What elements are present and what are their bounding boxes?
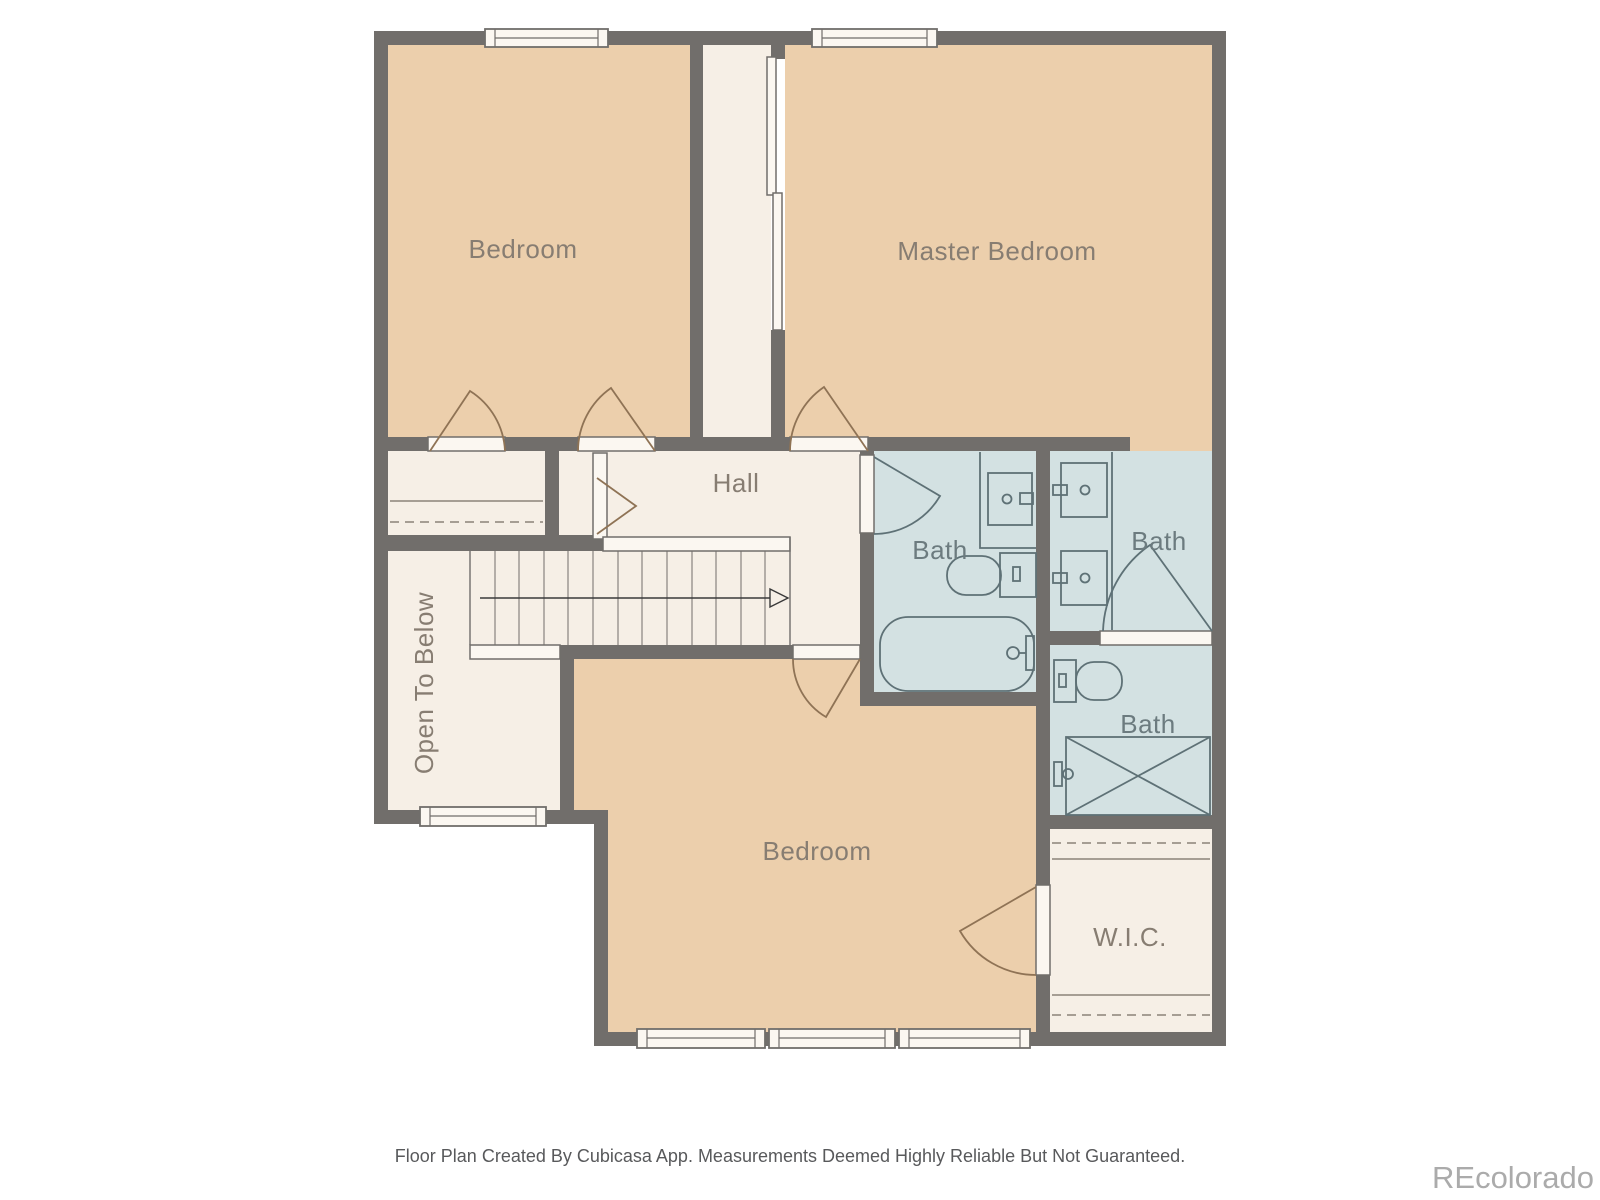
room-label-master-bedroom: Master Bedroom [897, 236, 1096, 266]
watermark-recolorado: REcolorado [1432, 1160, 1594, 1195]
bedroom-bottom-floor-b [574, 706, 1036, 824]
room-label-bedroom-bottom: Bedroom [763, 836, 872, 866]
window [420, 807, 546, 826]
floor-plan-canvas: Bedroom Master Bedroom Hall Bath Bath Ba… [0, 0, 1600, 1200]
wall-segment [1036, 975, 1050, 1032]
window [899, 1029, 1030, 1048]
door-sill [593, 453, 607, 539]
door-sill [1036, 885, 1050, 975]
wall-segment [545, 451, 559, 535]
door-sill [578, 437, 655, 451]
room-label-open-to-below: Open To Below [409, 592, 439, 774]
bath-middle-floor [874, 451, 1036, 692]
stair-rail [603, 537, 790, 551]
master-closet-floor [703, 45, 771, 437]
wall-segment [374, 535, 603, 551]
hall-floor-lower [790, 537, 860, 645]
wall-segment [1036, 631, 1100, 645]
wall-segment [374, 437, 428, 451]
room-label-bath-middle: Bath [912, 535, 968, 565]
sliding-door-panel [767, 57, 776, 195]
door-sill [860, 455, 874, 533]
wall-segment [655, 437, 790, 451]
room-label-hall: Hall [713, 468, 760, 498]
door-sill [1100, 631, 1212, 645]
window [637, 1029, 765, 1048]
floor-plan-page: Bedroom Master Bedroom Hall Bath Bath Ba… [0, 0, 1600, 1200]
wall-segment [374, 31, 388, 824]
bedroom-bottom-floor-a [574, 659, 860, 706]
wall-segment [1036, 645, 1050, 885]
wall-segment [560, 645, 574, 824]
wall-segment [1212, 31, 1226, 1046]
door-sill [793, 645, 860, 659]
window [769, 1029, 895, 1048]
wall-segment [860, 533, 874, 706]
wall-segment [560, 645, 793, 659]
master-bedroom-floor-extension [1130, 437, 1212, 453]
door-sill [790, 437, 868, 451]
wall-segment [505, 437, 578, 451]
door-sill [428, 437, 505, 451]
sliding-door-panel [773, 193, 782, 330]
disclaimer-text: Floor Plan Created By Cubicasa App. Meas… [395, 1146, 1185, 1166]
room-label-walk-in-closet: W.I.C. [1093, 922, 1167, 952]
wall-segment [1036, 815, 1212, 829]
room-label-bath-lower-right: Bath [1120, 709, 1176, 739]
room-label-bath-top-right: Bath [1131, 526, 1187, 556]
wall-segment [1036, 437, 1050, 645]
stair-rail [470, 645, 560, 659]
room-label-bedroom-top-left: Bedroom [469, 234, 578, 264]
wall-segment [771, 330, 785, 437]
wall-segment [868, 437, 1130, 451]
window [812, 29, 937, 47]
wall-segment [594, 824, 608, 1046]
wall-segment [690, 45, 703, 437]
window [485, 29, 608, 47]
wall-segment [860, 692, 1050, 706]
